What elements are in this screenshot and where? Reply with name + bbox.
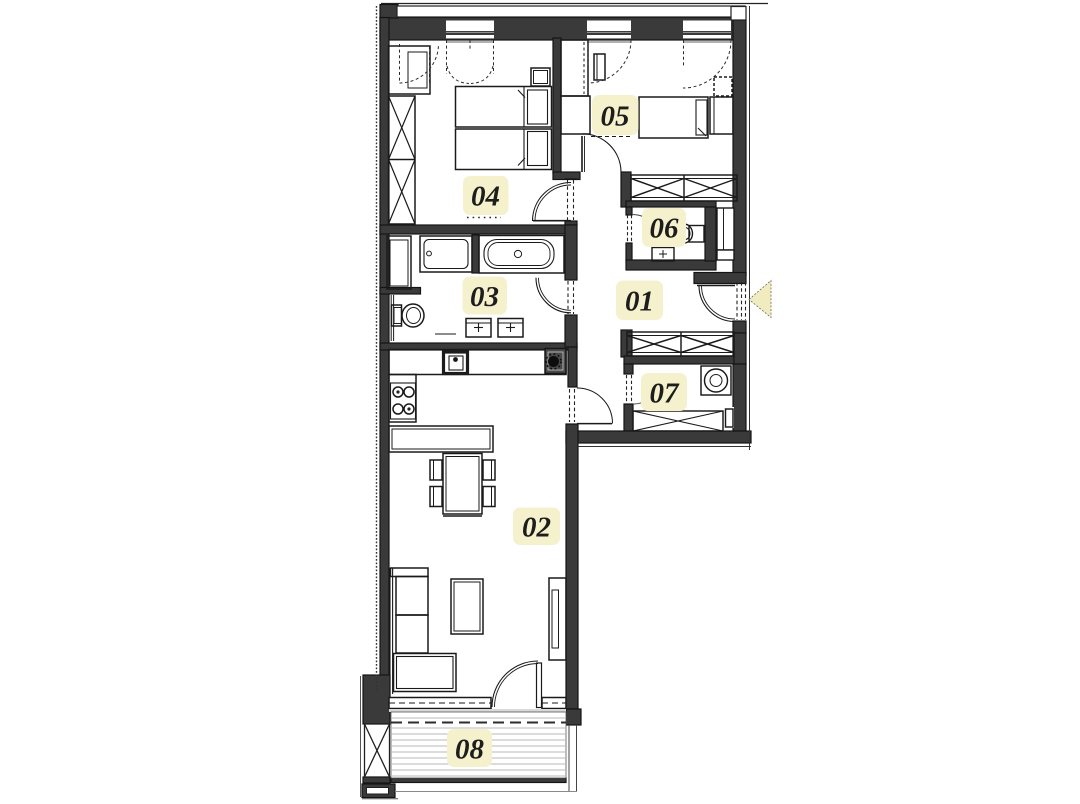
svg-text:01: 01 [625, 286, 654, 318]
svg-text:06: 06 [650, 213, 680, 245]
svg-text:08: 08 [455, 734, 485, 766]
svg-text:07: 07 [650, 378, 681, 410]
svg-text:05: 05 [601, 101, 630, 133]
svg-text:03: 03 [470, 281, 499, 313]
svg-text:04: 04 [471, 181, 500, 213]
svg-text:02: 02 [522, 512, 551, 544]
